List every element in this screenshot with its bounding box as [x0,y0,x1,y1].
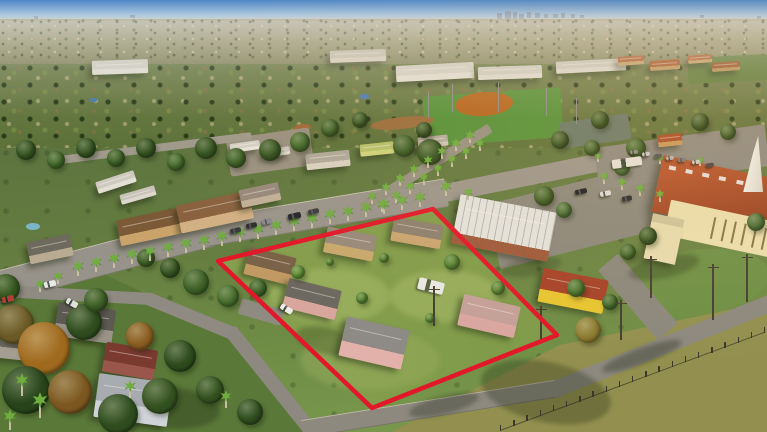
fence-post [526,415,527,421]
fence-post [751,332,752,338]
church-roof-vent [736,180,744,185]
tree [416,122,432,138]
tree [393,135,415,157]
house [657,133,682,147]
tree [591,111,609,129]
tree [136,138,156,158]
tree [195,137,217,159]
tree [259,139,281,161]
field-light-pole [428,92,429,118]
house [305,150,350,171]
tree [491,281,505,295]
skyline-building [757,16,761,19]
skyline-building [505,11,511,19]
tree [107,149,125,167]
tree [352,112,368,128]
house [556,58,627,74]
utility-pole-crossarm [536,309,547,310]
skyline-building [580,15,584,18]
tree [142,378,178,414]
fence-post [566,401,567,407]
house [396,62,475,82]
utility-pole [620,300,622,340]
tree [126,322,154,350]
tree [167,153,185,171]
fence-post [553,405,554,411]
tree [160,258,180,278]
utility-pole [650,256,652,298]
aerial-photo: Aerial drone photo of a suburban neighbo… [0,0,767,432]
fence-post [672,361,673,367]
skyline-building [553,14,558,18]
fence-post [500,425,501,431]
skyline-building [700,15,704,18]
house [330,49,386,63]
tree [183,269,209,295]
tree [321,119,339,137]
tree [48,370,92,414]
tree [356,292,368,304]
tree [556,202,572,218]
skyline-building [571,14,575,18]
field-light-pole [498,82,499,112]
church-window [741,224,747,246]
house [95,170,137,194]
fence-post [619,381,620,387]
skyline-building [130,15,135,18]
utility-pole [540,306,542,342]
tree [249,279,267,297]
church-window [761,228,767,250]
tree [602,294,618,310]
skyline-building [519,14,524,19]
tree [567,279,585,297]
house [478,65,542,80]
house [359,141,394,156]
house [650,59,681,71]
fence-post [579,396,580,402]
church-roof-vent [685,169,693,174]
tree [226,148,246,168]
fence-post [738,337,739,343]
skyline-building [527,12,531,18]
tree [164,340,196,372]
skyline-building [535,13,540,18]
skyline-building [34,16,38,19]
tree [196,376,224,404]
skyline-building [544,14,548,18]
fence-post [513,420,514,426]
terrain-patch [26,223,40,230]
church-window [710,217,716,239]
tree [326,258,334,266]
church-window [731,221,737,243]
house [618,55,645,66]
fence-post [658,366,659,372]
house [712,61,741,72]
fence-post [698,352,699,358]
tree [16,140,36,160]
tree [691,113,709,131]
utility-pole-crossarm [708,267,719,268]
tree [237,399,263,425]
skyline-building [497,13,502,19]
tree [639,227,657,245]
tree [290,132,310,152]
utility-pole-crossarm [429,289,440,290]
tree [575,317,601,343]
terrain-patch [360,94,369,99]
house [119,185,156,205]
utility-pole-crossarm [646,259,657,260]
utility-pole [712,264,714,320]
fence-post [645,371,646,377]
tree [47,151,65,169]
fence-post [540,410,541,416]
scene-objects [0,0,767,432]
fence-post [606,386,607,392]
field-light-pole [546,88,547,116]
church-roof-vent [668,166,676,171]
tree [620,244,636,260]
tree [291,265,305,279]
utility-pole [433,286,435,326]
utility-pole-crossarm [742,257,753,258]
fence-post [711,347,712,353]
tree [379,253,389,263]
fence-post [724,342,725,348]
church-window [720,219,726,241]
field-light-pole [576,98,577,124]
fence-post [685,356,686,362]
tree [2,366,50,414]
terrain-patch [90,98,97,102]
tree [444,254,460,270]
skyline-building [513,12,517,19]
fence-post [592,391,593,397]
house [688,54,712,64]
fence-post [764,327,765,333]
house [92,59,148,75]
skyline-building [561,13,565,18]
tree [551,131,569,149]
utility-pole [746,254,748,302]
field-light-pole [452,84,453,112]
fence-post [632,376,633,382]
church-roof-vent [702,173,710,178]
tree [534,186,554,206]
tree [84,288,108,312]
tree [720,124,736,140]
house [239,182,282,208]
utility-pole-crossarm [616,303,627,304]
tree [76,138,96,158]
church-roof-vent [719,176,727,181]
tree [98,394,138,432]
tree [217,285,239,307]
tree [747,213,765,231]
